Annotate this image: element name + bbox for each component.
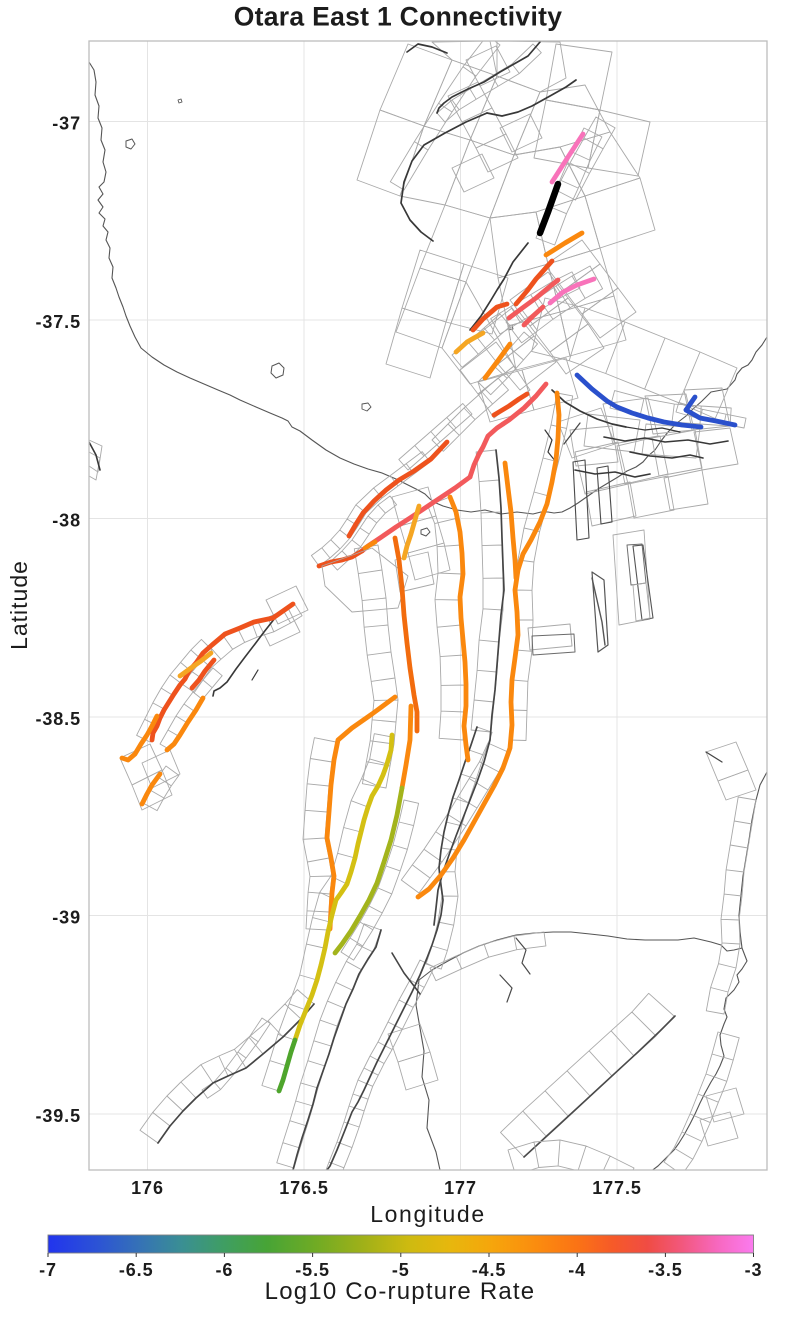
svg-text:-4.5: -4.5 — [472, 1260, 507, 1280]
svg-text:-39: -39 — [52, 908, 81, 928]
svg-text:-39.5: -39.5 — [35, 1106, 81, 1126]
svg-text:-6: -6 — [215, 1260, 233, 1280]
svg-text:-37: -37 — [52, 114, 81, 134]
svg-text:177: 177 — [444, 1178, 477, 1198]
svg-text:-5: -5 — [392, 1260, 410, 1280]
svg-text:Otara East 1 Connectivity: Otara East 1 Connectivity — [234, 2, 563, 32]
svg-text:176: 176 — [131, 1178, 164, 1198]
svg-text:-3: -3 — [745, 1260, 763, 1280]
svg-text:Log10 Co-rupture Rate: Log10 Co-rupture Rate — [265, 1278, 536, 1305]
svg-text:-4: -4 — [568, 1260, 586, 1280]
svg-text:-38: -38 — [52, 511, 81, 531]
svg-text:-5.5: -5.5 — [295, 1260, 330, 1280]
svg-text:-7: -7 — [39, 1260, 57, 1280]
svg-text:-3.5: -3.5 — [648, 1260, 683, 1280]
svg-text:176.5: 176.5 — [279, 1178, 329, 1198]
svg-text:177.5: 177.5 — [592, 1178, 642, 1198]
svg-text:-38.5: -38.5 — [35, 709, 81, 729]
svg-text:-6.5: -6.5 — [119, 1260, 154, 1280]
svg-text:-37.5: -37.5 — [35, 312, 81, 332]
svg-text:Latitude: Latitude — [6, 560, 32, 650]
svg-text:Longitude: Longitude — [370, 1201, 485, 1227]
